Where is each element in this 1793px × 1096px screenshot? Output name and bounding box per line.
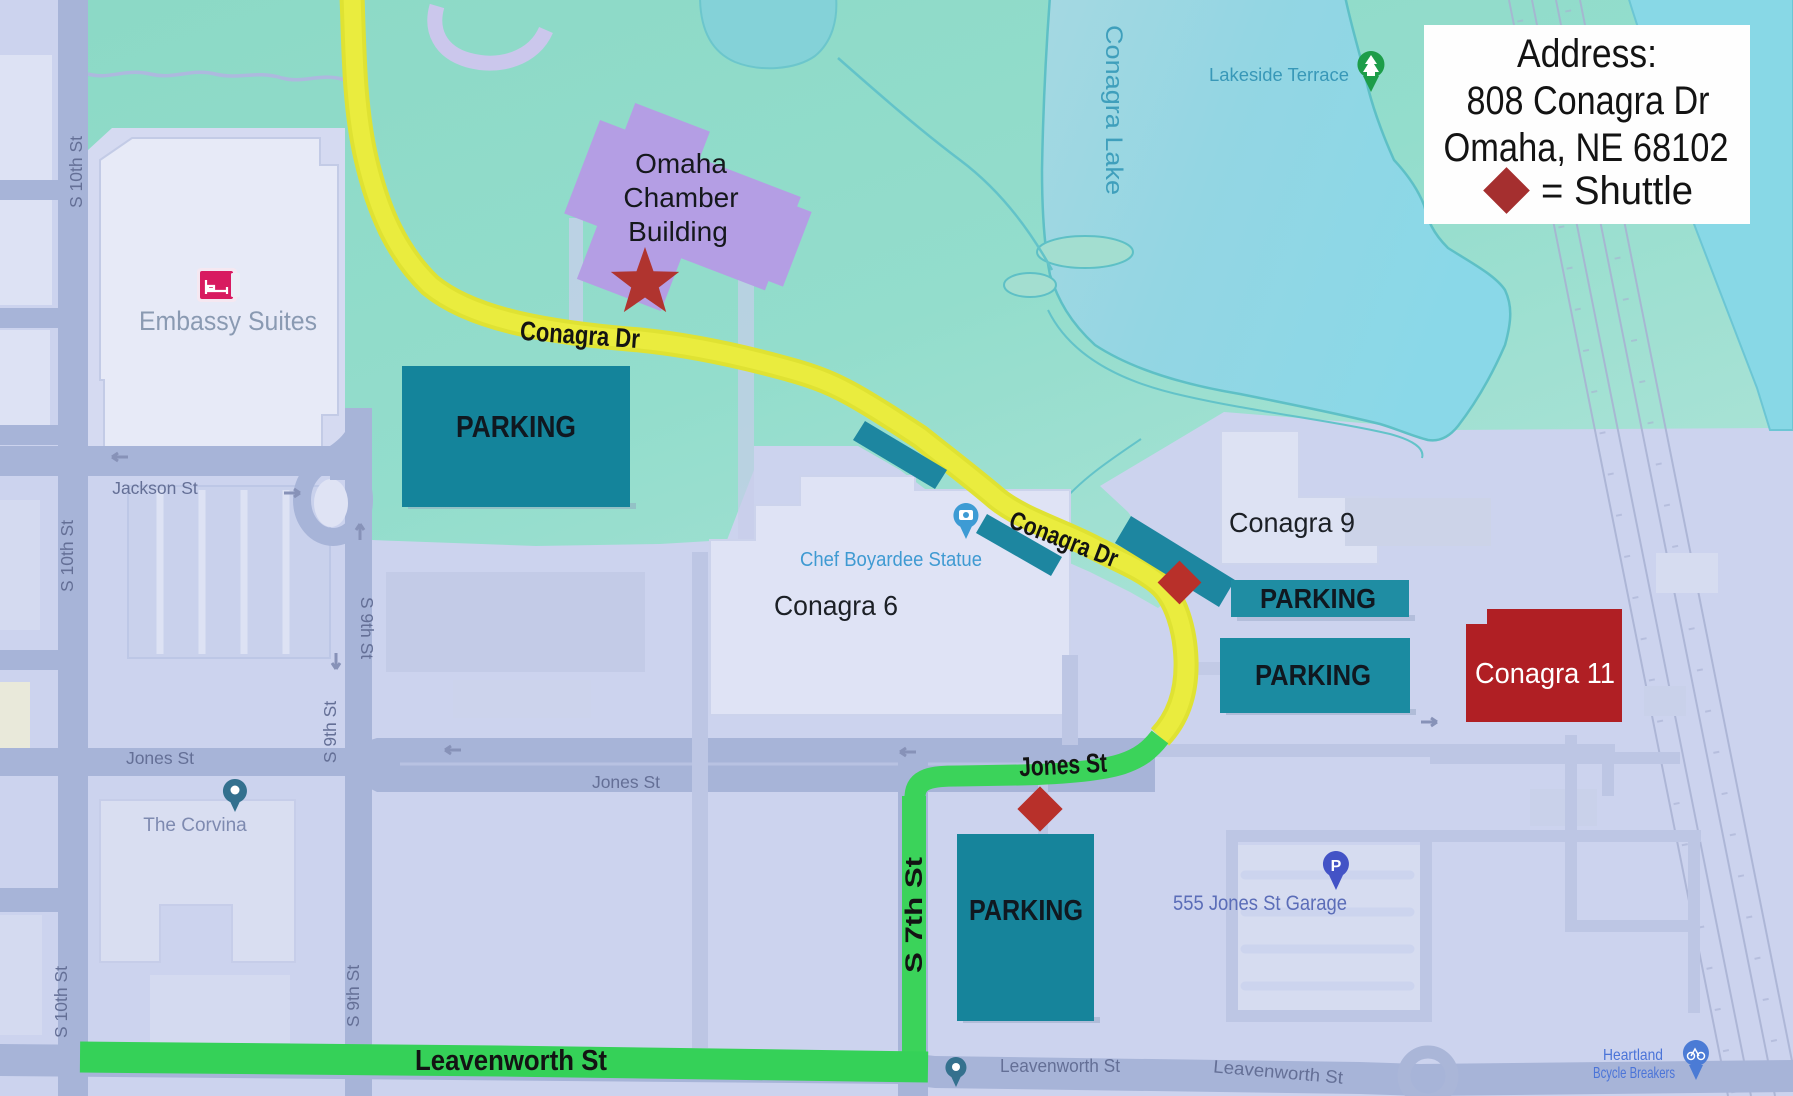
svg-text:Conagra 11: Conagra 11: [1475, 658, 1615, 690]
svg-text:Jones St: Jones St: [592, 772, 660, 792]
svg-text:= Shuttle: = Shuttle: [1541, 169, 1693, 213]
svg-text:Omaha: Omaha: [635, 148, 727, 179]
svg-text:Jackson St: Jackson St: [112, 478, 198, 498]
svg-text:The Corvina: The Corvina: [143, 815, 247, 836]
svg-text:Conagra 9: Conagra 9: [1229, 507, 1355, 538]
svg-text:S 7th St: S 7th St: [901, 857, 928, 973]
svg-text:Bcycle Breakers: Bcycle Breakers: [1593, 1065, 1675, 1082]
svg-text:S 9th St: S 9th St: [357, 597, 377, 659]
svg-text:Heartland: Heartland: [1603, 1047, 1663, 1064]
svg-text:Chef Boyardee Statue: Chef Boyardee Statue: [800, 549, 982, 571]
svg-text:S 9th St: S 9th St: [320, 701, 340, 763]
svg-text:Leavenworth St: Leavenworth St: [1000, 1056, 1120, 1076]
svg-text:Jones St: Jones St: [1018, 748, 1107, 783]
svg-text:S 10th St: S 10th St: [66, 136, 86, 208]
svg-text:Conagra 6: Conagra 6: [774, 590, 898, 621]
svg-text:808 Conagra Dr: 808 Conagra Dr: [1467, 79, 1710, 123]
svg-text:Lakeside Terrace: Lakeside Terrace: [1209, 65, 1349, 85]
svg-text:S 10th St: S 10th St: [57, 520, 77, 592]
svg-text:Conagra Lake: Conagra Lake: [1100, 25, 1127, 195]
svg-text:Building: Building: [628, 216, 728, 247]
svg-text:S 10th St: S 10th St: [51, 966, 71, 1038]
svg-text:PARKING: PARKING: [456, 409, 576, 444]
svg-text:PARKING: PARKING: [1255, 660, 1371, 692]
svg-text:Address:: Address:: [1517, 32, 1657, 76]
svg-text:PARKING: PARKING: [969, 895, 1083, 927]
svg-text:Embassy Suites: Embassy Suites: [139, 306, 317, 336]
svg-text:Leavenworth St: Leavenworth St: [415, 1045, 607, 1077]
svg-text:Jones St: Jones St: [126, 748, 194, 768]
svg-text:PARKING: PARKING: [1260, 583, 1376, 614]
svg-text:Chamber: Chamber: [623, 182, 738, 213]
svg-text:555 Jones St Garage: 555 Jones St Garage: [1173, 892, 1347, 915]
svg-text:Omaha, NE 68102: Omaha, NE 68102: [1444, 126, 1729, 170]
svg-text:S 9th St: S 9th St: [343, 965, 363, 1027]
svg-text:P: P: [1331, 858, 1342, 875]
